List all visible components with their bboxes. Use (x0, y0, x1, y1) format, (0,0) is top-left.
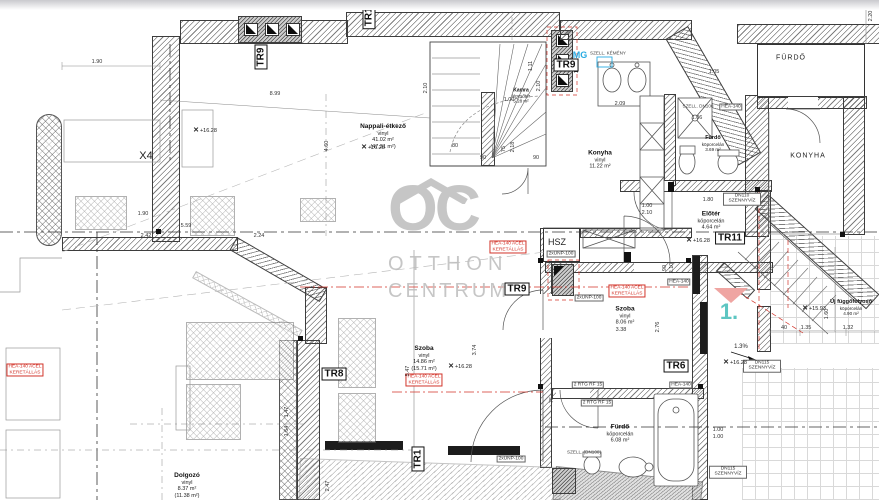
dimension: 2.09 (615, 101, 626, 107)
level-cross-icon: ✕ (361, 144, 367, 151)
exterior-stair-treads (738, 224, 856, 334)
dimension: 1.00 (642, 203, 653, 209)
dimension: 5.59 (181, 223, 192, 229)
dimension: 2.18 (510, 142, 516, 153)
room-label-szoba-large: Szoba vinyl 14.86 m² (15.71 m²) (411, 345, 436, 373)
level-marker: ✕+16.28 (723, 358, 747, 366)
level-cross-icon: ✕ (802, 305, 808, 312)
level-cross-icon: ✕ (723, 359, 729, 366)
tag-tr1: TR1 (412, 447, 425, 472)
floor-plan-canvas: OC OTTHON CENTRUM Nappali-étkező vinyl 4… (0, 0, 879, 500)
room-label-hsz: HSZ (548, 237, 566, 247)
watermark-roof-icon (388, 178, 474, 204)
note-hea: HEA-140 (669, 382, 692, 389)
note-unp: 2xUNP-100 (497, 456, 526, 463)
note-hea: HEA-140 (667, 279, 690, 286)
room-label-dolgozo: Dolgozó vinyl 8.37 m² (11.38 m²) (174, 472, 200, 500)
dimension: 75 (549, 397, 555, 403)
room-label-furdo-upper: Fürdő köporcelán 3.69 m² (702, 135, 724, 153)
level-cross-icon: ✕ (686, 237, 692, 244)
dimension: 2.10 (536, 81, 542, 92)
dimension: 1.00 (713, 427, 724, 433)
slope-label: 1.3% (734, 344, 748, 350)
level-cross-icon: ✕ (448, 363, 454, 370)
red-note-steel-frame: HEA-140 ACÉLKERETÁLLÁS (489, 240, 526, 253)
washbasin-icon (584, 456, 600, 474)
dimension: 1.11 (528, 61, 534, 71)
dimension: 1.05 (709, 69, 720, 75)
note-unp: 2xUNP-100 (575, 295, 604, 302)
room-label-eloter: Előtér köporcelán 4.64 m² (698, 211, 725, 232)
level-marker: ✕+16.28 (448, 362, 472, 370)
dimension: 2.20 (868, 11, 874, 22)
room-label-neighbor-furdo: FÜRDŐ (776, 55, 806, 62)
tag-tr9-rotated: TR9 (255, 45, 268, 70)
dimension: 75 (501, 146, 507, 152)
red-note-steel-frame: HEA-140 ACÉLKERETÁLLÁS (405, 373, 442, 386)
tag-tr8: TR8 (322, 368, 347, 381)
dimension: 1.47 (284, 407, 290, 418)
dimension: 2.76 (655, 322, 661, 333)
dimension: 90 (662, 265, 668, 271)
note-drain: DN110 SZENNYVÍZ (723, 193, 761, 206)
level-marker: ✕+16.28 (686, 236, 710, 244)
sink-bowl-icon (628, 68, 646, 92)
dimension: 40 (781, 325, 787, 331)
dimension: 5.47 (405, 366, 411, 377)
axis-label-x4: X4 (139, 150, 152, 162)
drain-icon (673, 407, 679, 413)
toilet-tank (645, 463, 653, 471)
note-drain: DN115 SZENNYVÍZ (743, 360, 781, 373)
dimension: 2.10 (642, 210, 653, 216)
note-hea: HEA-140 (719, 104, 742, 111)
room-label-szoba-small: Szoba vinyl 8.06 m² (615, 306, 634, 327)
dimension: 8.99 (270, 91, 281, 97)
note-rtg: 2 RTG RF 15 (572, 382, 604, 389)
tag-tr6: TR6 (664, 360, 689, 373)
dimension: 1.90 (92, 59, 103, 65)
apartment-number: 1. (720, 299, 738, 325)
tag-tr9-mid: TR9 (505, 283, 530, 296)
dimension: 1.06 (692, 115, 703, 121)
toilet-icon (619, 457, 647, 477)
dimension: 3.74 (472, 345, 478, 356)
red-construction-lines (300, 27, 803, 392)
dimension: 90 (533, 155, 539, 161)
note-drain: DN115 SZENNYVÍZ (709, 466, 747, 479)
room-label-neighbor-konyha: KONYHA (790, 153, 826, 160)
tag-tr11: TR11 (715, 232, 745, 245)
note-vent: SZELL. DN100 (683, 104, 714, 109)
tag-tr9-top: TR9 (554, 59, 579, 72)
note-vent: SZELL. KÉMÉNY (590, 51, 626, 56)
dimension: 1.00 (504, 97, 515, 103)
toilet-tank (680, 146, 695, 154)
tap-icon (635, 63, 639, 67)
level-marker: ✕+15.93 (802, 304, 826, 312)
dimension: 2.10 (669, 263, 675, 274)
note-rtg: 2 RTG RF 15 (581, 400, 613, 407)
dimension: 80 (452, 143, 458, 149)
dimension: 1.32 (843, 325, 854, 331)
sink-bowl-icon (603, 68, 621, 92)
dimension: 2.24 (254, 233, 265, 239)
room-label-konyha: Konyha vinyl 11.22 m² (588, 150, 612, 171)
room-label-fuggofolyoso: Új függőfolyosó köporcelán 4.90 m² (830, 299, 872, 317)
dimension: 2.42 (141, 233, 152, 239)
dimension: 1.90 (138, 211, 149, 217)
dimension: 2.10 (423, 83, 429, 94)
dimension: 2.47 (325, 481, 331, 492)
dimension: 1.64 (284, 426, 290, 437)
room-label-furdo-lower: Fürdő köporcelán 6.08 m² (607, 424, 634, 445)
level-cross-icon: ✕ (193, 127, 199, 134)
dimension: 90 (480, 155, 486, 161)
level-marker: ✕+16.28 (361, 143, 385, 151)
dimension: 4.60 (324, 141, 330, 152)
dimension: 1.00 (713, 434, 724, 440)
note-vent: SZELL. (DN100) (567, 450, 601, 455)
fixtures (543, 62, 739, 486)
watermark-line1: OTTHON (388, 253, 509, 276)
dimension: 3.38 (616, 327, 627, 333)
red-note-steel-frame: HEA-140 ACÉLKERETÁLLÁS (6, 363, 43, 376)
dimension: 1.35 (801, 325, 812, 331)
dimension: 1.60 (824, 309, 830, 320)
level-marker: ✕+16.28 (193, 126, 217, 134)
room-label-kamra: Kamra lépcsőtér 5.28 m² (512, 88, 530, 105)
note-unp: 2xUNP-100 (547, 251, 576, 258)
screen-top-edge (0, 0, 879, 10)
watermark-line2: CENTRUM (388, 280, 509, 303)
dimension: 1.80 (703, 197, 714, 203)
red-note-steel-frame: HEA-140 ACÉLKERETÁLLÁS (608, 284, 645, 297)
